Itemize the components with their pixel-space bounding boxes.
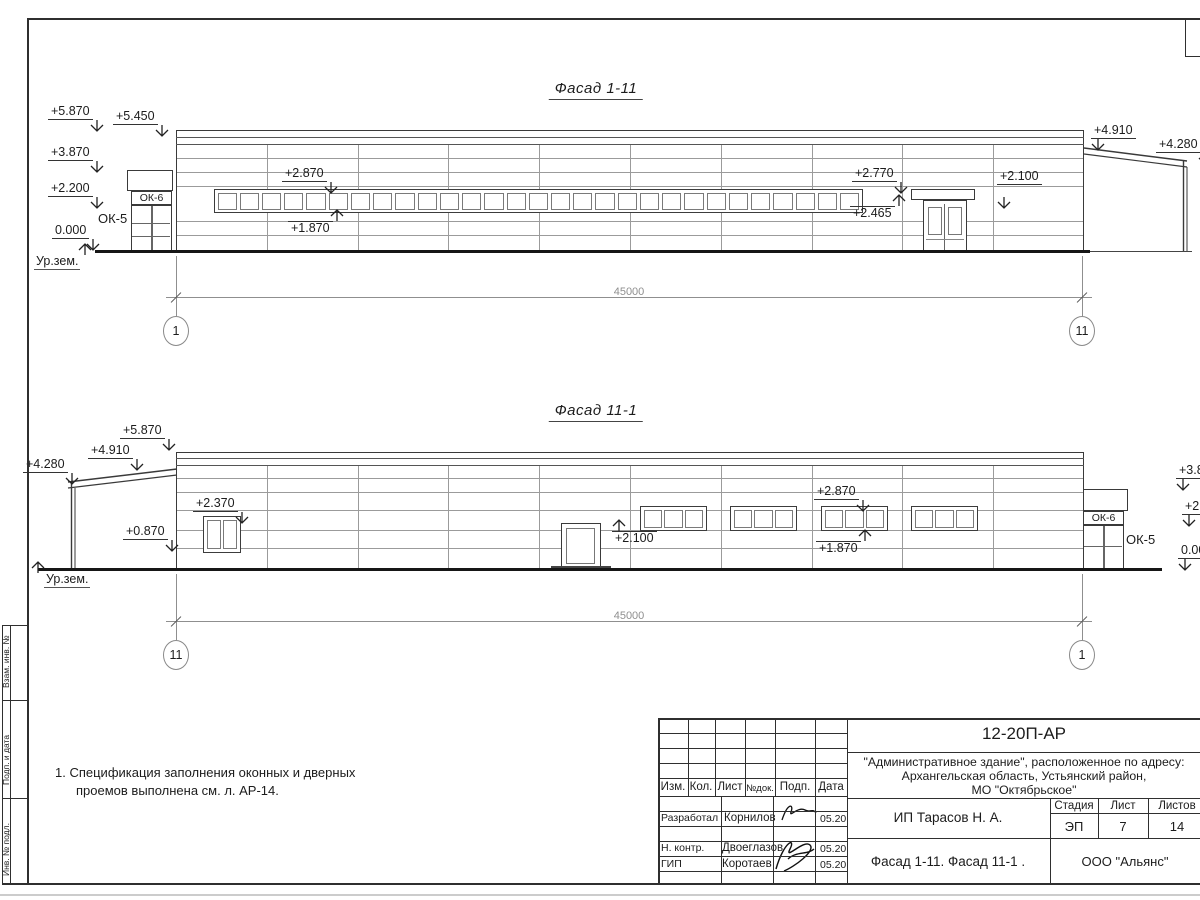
tb-main-divider bbox=[847, 718, 848, 884]
strip-outer bbox=[2, 625, 3, 883]
tb-rev-col bbox=[688, 718, 689, 796]
tb-stage-left bbox=[1050, 798, 1051, 884]
tb-rev-row bbox=[658, 748, 847, 749]
tb-sig-row bbox=[658, 826, 847, 827]
tb-rev-row bbox=[658, 733, 847, 734]
tb-sig-row bbox=[658, 841, 847, 842]
frame-left bbox=[27, 18, 29, 884]
tb-rev-col bbox=[715, 718, 716, 796]
tb-rev-col bbox=[745, 718, 746, 796]
tb-stage-col2 bbox=[1148, 798, 1149, 838]
frame-top bbox=[27, 18, 1200, 20]
tb-rev-row bbox=[658, 778, 847, 779]
tb-rev-col bbox=[815, 718, 816, 796]
tb-stage-header-row bbox=[1050, 813, 1200, 814]
tb-sig-row bbox=[658, 856, 847, 857]
tb-stage-col1 bbox=[1098, 798, 1099, 838]
tb-header-bottom bbox=[658, 796, 847, 797]
tb-mid-row bbox=[847, 838, 1200, 839]
tb-top bbox=[658, 718, 1200, 720]
tb-rev-row bbox=[658, 763, 847, 764]
paper-edge bbox=[0, 894, 1200, 896]
drawing-sheet: Фасад 1-11 Фасад 11-1 ОК-6ОК-545000111+5… bbox=[0, 0, 1200, 900]
corner-box-left bbox=[1185, 18, 1186, 56]
tb-sig-row bbox=[658, 871, 847, 872]
strip-divider bbox=[2, 625, 27, 626]
tb-rev-col bbox=[775, 718, 776, 796]
corner-box-bottom bbox=[1185, 56, 1200, 57]
tb-docnum-bottom bbox=[847, 752, 1200, 753]
strip-inner bbox=[10, 625, 11, 883]
strip-divider bbox=[2, 798, 27, 799]
tb-sig-row bbox=[658, 811, 847, 812]
frame-bottom bbox=[2, 883, 1200, 885]
tb-left bbox=[658, 718, 660, 884]
strip-divider bbox=[2, 700, 27, 701]
sheet-frame-layer bbox=[0, 0, 1200, 900]
